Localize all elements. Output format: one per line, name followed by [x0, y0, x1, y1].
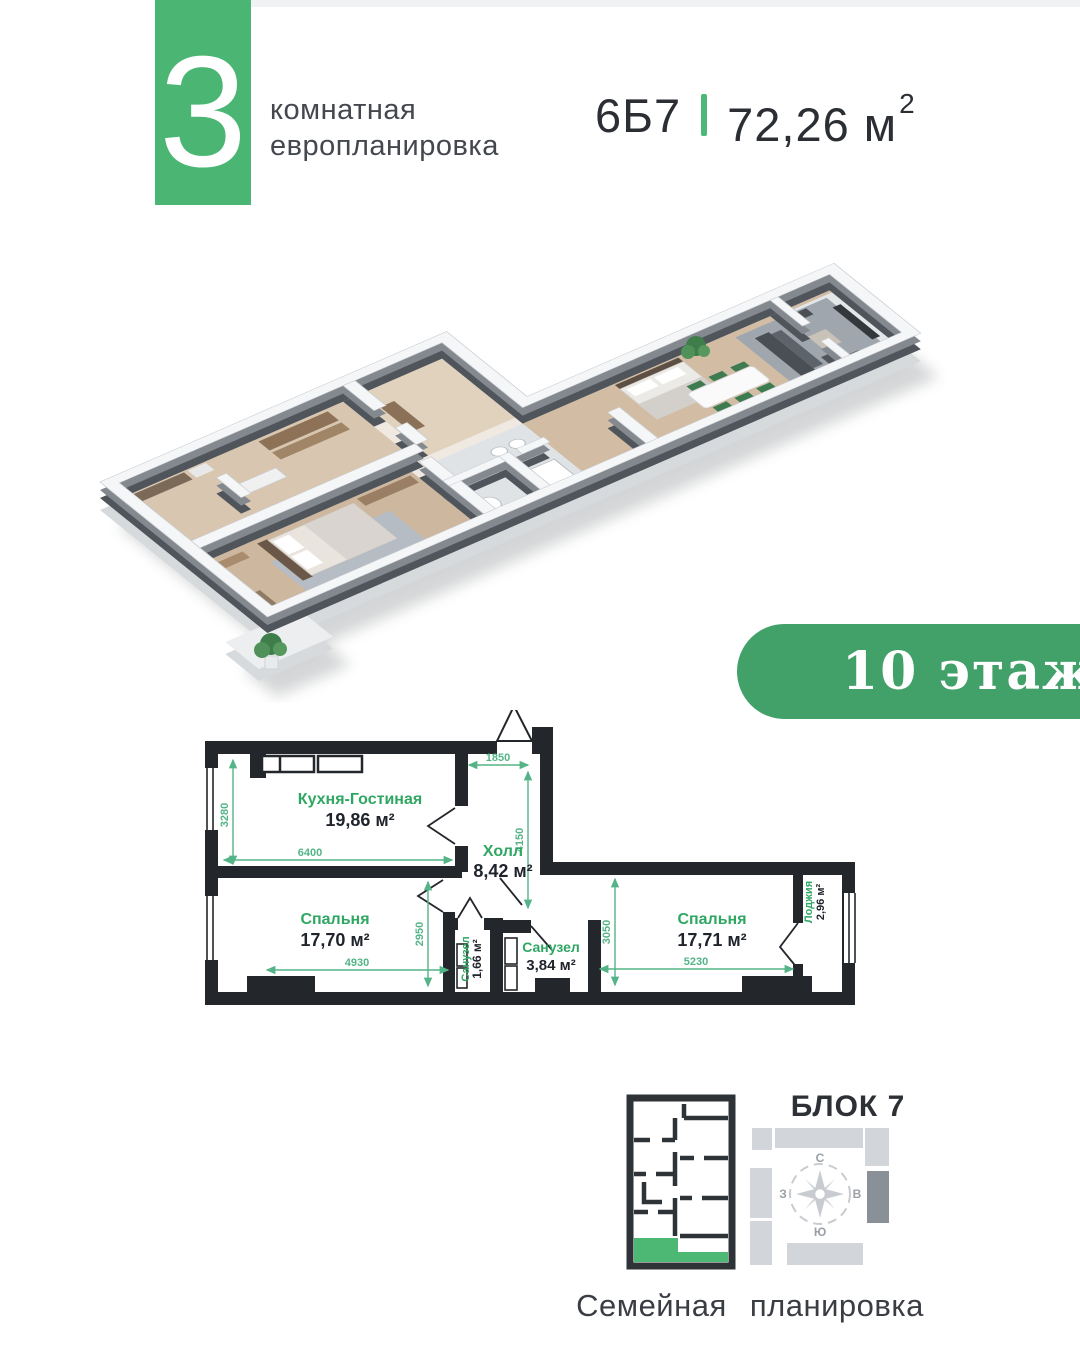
block-segment: [750, 1168, 772, 1218]
block-label: БЛОК 7: [742, 1090, 954, 1124]
svg-text:1,66 м²: 1,66 м²: [470, 939, 484, 979]
svg-text:3050: 3050: [601, 920, 613, 944]
floor-plan-2d: 3280 6400 1850 4150 2950 4930 3050 5230 …: [190, 710, 870, 1015]
svg-text:4930: 4930: [345, 957, 369, 969]
plan-caption: Семейная планировка: [540, 1288, 960, 1324]
rooms-count: 3: [159, 33, 247, 191]
svg-text:Лоджия: Лоджия: [803, 881, 815, 923]
svg-text:Ю: Ю: [814, 1225, 826, 1239]
svg-text:Кухня-Гостиная: Кухня-Гостиная: [298, 791, 422, 808]
block-diagram: БЛОК 7 С Ю З В: [742, 1090, 954, 1290]
block-segment-highlighted: [867, 1171, 889, 1223]
svg-text:3,84 м²: 3,84 м²: [526, 957, 575, 974]
unit-position-plan: [622, 1094, 750, 1272]
svg-text:3280: 3280: [219, 803, 231, 827]
svg-text:2950: 2950: [414, 922, 426, 946]
window-icon: [203, 768, 220, 830]
svg-text:С: С: [816, 1151, 825, 1165]
rooms-type-label: комнатная европланировка: [270, 92, 499, 164]
svg-text:6400: 6400: [298, 847, 322, 859]
block-segment: [750, 1243, 770, 1265]
svg-text:1850: 1850: [486, 752, 510, 764]
svg-text:Холл: Холл: [483, 843, 523, 860]
flat-poster: { "header": { "rooms_number": "3", "room…: [0, 0, 1080, 1350]
svg-text:В: В: [853, 1187, 862, 1201]
svg-text:2,96 м²: 2,96 м²: [815, 884, 827, 921]
room-labels: Кухня-Гостиная 19,86 м² Холл 8,42 м² Спа…: [298, 791, 827, 982]
rooms-count-box: 3: [155, 0, 251, 205]
top-strip: [250, 0, 1080, 7]
svg-text:17,70 м²: 17,70 м²: [300, 930, 369, 950]
floor-badge-label: 10 этаж: [842, 641, 1080, 702]
rooms-type-line1: комнатная: [270, 92, 499, 128]
floor-badge: 10 этаж: [737, 624, 1080, 719]
svg-text:8,42 м²: 8,42 м²: [473, 861, 532, 881]
block-segment: [775, 1128, 863, 1148]
unit-code: 6Б7: [595, 88, 681, 143]
svg-text:Спальня: Спальня: [677, 911, 746, 928]
compass-icon: С Ю З В: [775, 1148, 865, 1240]
block-segment: [752, 1128, 772, 1150]
svg-text:17,71 м²: 17,71 м²: [677, 930, 746, 950]
svg-text:Санузел: Санузел: [522, 939, 580, 955]
window-icon: [203, 896, 220, 960]
svg-text:5230: 5230: [684, 956, 708, 968]
svg-text:19,86 м²: 19,86 м²: [325, 810, 394, 830]
rooms-type-line2: европланировка: [270, 128, 499, 164]
block-segment: [865, 1128, 889, 1166]
unit-area: 72,26 м2: [727, 88, 916, 152]
unit-title: 6Б7 72,26 м2: [595, 88, 916, 152]
svg-text:Спальня: Спальня: [300, 911, 369, 928]
title-divider: [701, 94, 707, 136]
svg-text:З: З: [779, 1187, 787, 1201]
window-icon: [844, 893, 861, 963]
block-segment: [787, 1243, 863, 1265]
entrance-door-icon: [497, 710, 532, 741]
